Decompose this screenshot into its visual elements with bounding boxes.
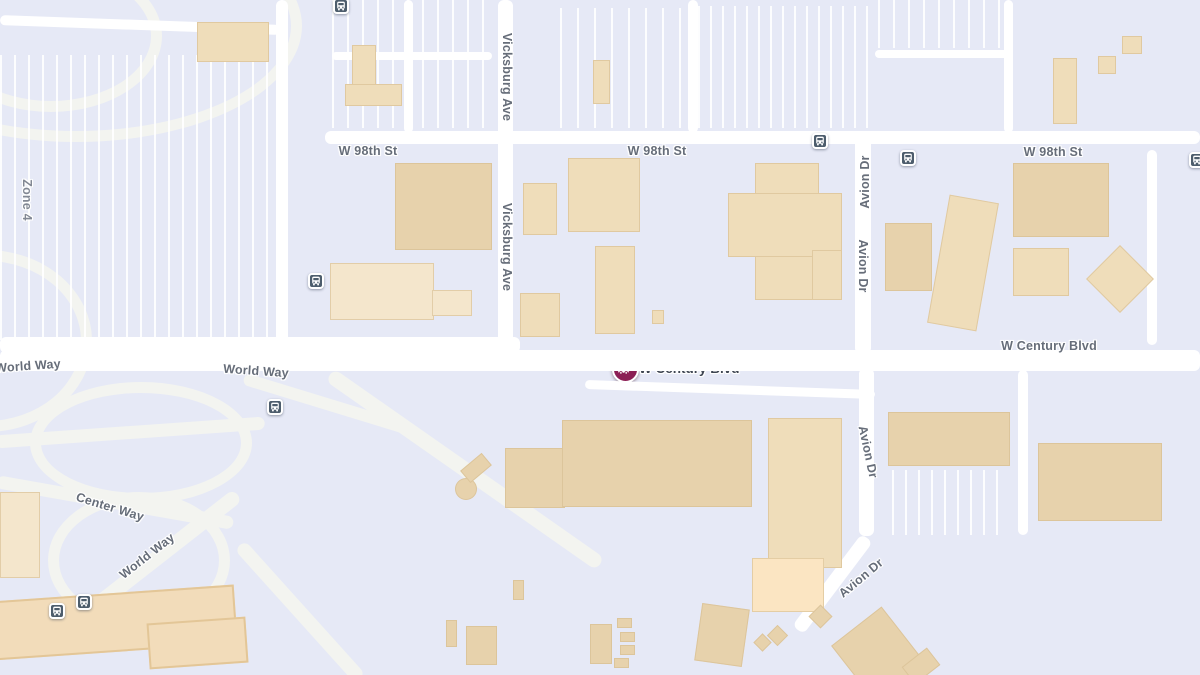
- bus-icon: [269, 401, 281, 413]
- parking-lot: [0, 55, 275, 340]
- building: [466, 626, 497, 665]
- transit-stop-icon[interactable]: [76, 594, 92, 610]
- road-label: Vicksburg Ave: [500, 33, 514, 121]
- building: [617, 618, 632, 628]
- road-label: Vicksburg Ave: [500, 203, 514, 291]
- transit-stop-icon[interactable]: [267, 399, 283, 415]
- building: [523, 183, 557, 235]
- parking-lot: [560, 8, 682, 128]
- building: [768, 418, 842, 568]
- road: [1004, 0, 1013, 133]
- building: [147, 617, 249, 670]
- bus-icon: [78, 596, 90, 608]
- building: [620, 645, 635, 655]
- building: [885, 223, 932, 291]
- building: [395, 163, 492, 250]
- building: [568, 158, 640, 232]
- transit-stop-icon[interactable]: [1189, 152, 1200, 168]
- building: [1038, 443, 1162, 521]
- building: [513, 580, 524, 600]
- road-label: Avion Dr: [858, 155, 872, 208]
- road: [276, 0, 288, 352]
- transit-stop-icon[interactable]: [900, 150, 916, 166]
- road-label: W Century Blvd: [1001, 339, 1097, 353]
- bus-icon: [1191, 154, 1200, 166]
- parking-lot: [878, 0, 1003, 48]
- bus-icon: [814, 135, 826, 147]
- building: [620, 632, 635, 642]
- bus-icon: [335, 0, 347, 12]
- parking-lot: [892, 470, 1007, 535]
- building: [1086, 245, 1154, 313]
- road: [404, 0, 413, 133]
- road-label: W 98th St: [1024, 145, 1083, 159]
- road: [325, 131, 1200, 144]
- building: [352, 45, 376, 85]
- transit-stop-icon[interactable]: [308, 273, 324, 289]
- building: [694, 603, 750, 667]
- building: [1122, 36, 1142, 54]
- bus-icon: [51, 605, 63, 617]
- building: [562, 420, 752, 507]
- bus-icon: [310, 275, 322, 287]
- road-label: W 98th St: [339, 144, 398, 158]
- building: [505, 448, 565, 508]
- building: [752, 558, 824, 612]
- parking-lot: [698, 6, 870, 128]
- building: [593, 60, 610, 104]
- building: [595, 246, 635, 334]
- road: [0, 350, 1200, 371]
- building: [1013, 163, 1109, 237]
- bus-icon: [902, 152, 914, 164]
- map-canvas[interactable]: W Century Blvd W 98th StW 98th StW 98th …: [0, 0, 1200, 675]
- building: [590, 624, 612, 664]
- building: [446, 620, 457, 647]
- road: [1018, 370, 1028, 535]
- road: [1147, 150, 1157, 345]
- building: [1053, 58, 1077, 124]
- building: [728, 193, 842, 257]
- transit-stop-icon[interactable]: [333, 0, 349, 14]
- ramp-road: [235, 540, 366, 675]
- building: [652, 310, 664, 324]
- transit-stop-icon[interactable]: [49, 603, 65, 619]
- building: [197, 22, 269, 62]
- road: [585, 380, 875, 399]
- building: [520, 293, 560, 337]
- building: [614, 658, 629, 668]
- building: [432, 290, 472, 316]
- road-label: W 98th St: [628, 144, 687, 158]
- building: [812, 250, 842, 300]
- transit-stop-icon[interactable]: [812, 133, 828, 149]
- road-label: Zone 4: [20, 179, 34, 220]
- building: [455, 478, 477, 500]
- building: [1098, 56, 1116, 74]
- building: [0, 492, 40, 578]
- road: [688, 0, 698, 133]
- building: [345, 84, 402, 106]
- building: [1013, 248, 1069, 296]
- road: [875, 50, 1010, 58]
- road: [0, 337, 520, 353]
- building: [888, 412, 1010, 466]
- building: [330, 263, 434, 320]
- building: [927, 195, 999, 332]
- road-label: Avion Dr: [856, 239, 870, 292]
